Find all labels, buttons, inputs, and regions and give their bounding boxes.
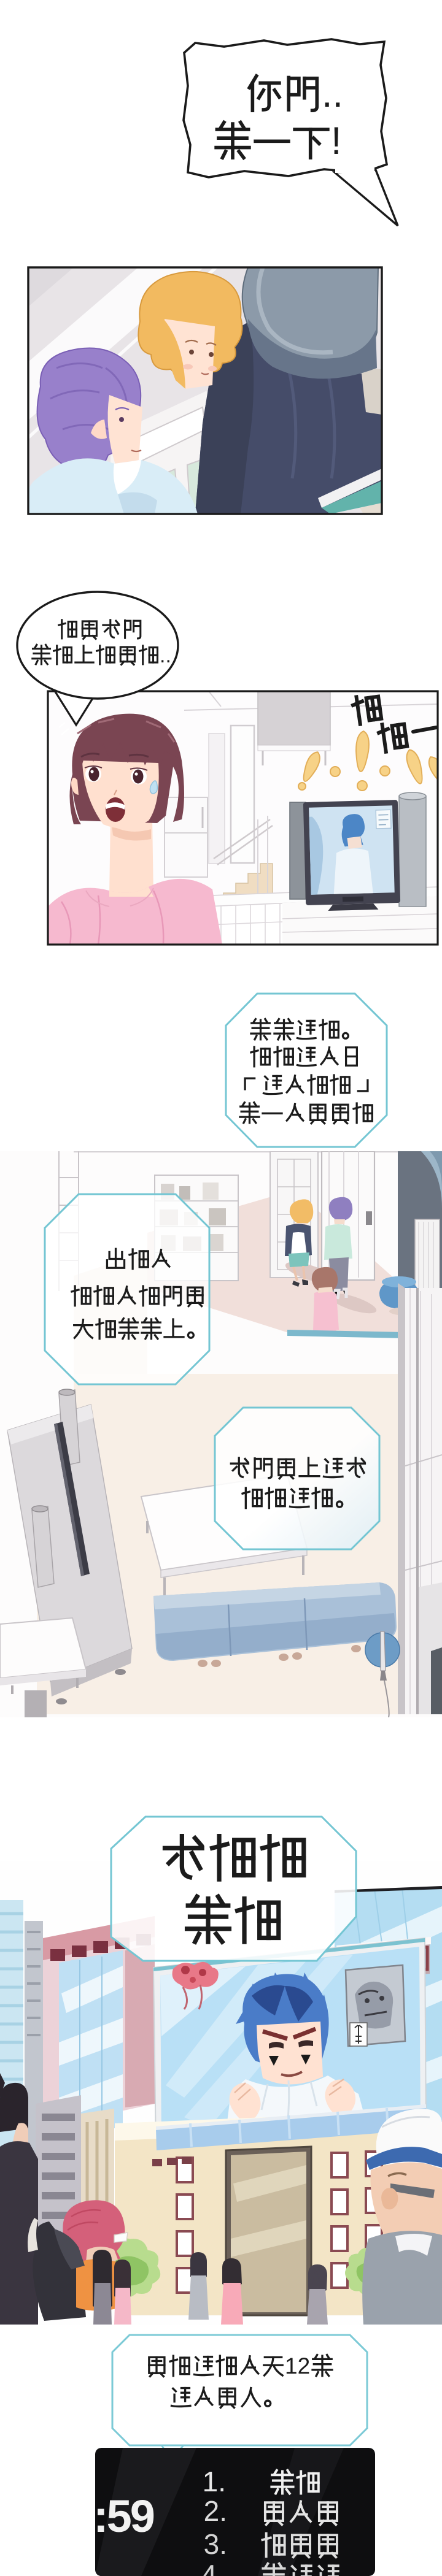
svg-text:1.: 1.: [203, 2466, 226, 2497]
svg-text:..: ..: [160, 644, 171, 667]
svg-text:4.: 4.: [201, 2559, 225, 2576]
svg-text:!: !: [331, 120, 342, 163]
svg-text::59: :59: [93, 2491, 154, 2542]
svg-text:3.: 3.: [204, 2528, 227, 2560]
svg-text:12: 12: [285, 2353, 310, 2379]
svg-text:2.: 2.: [204, 2495, 227, 2527]
svg-text:..: ..: [322, 72, 343, 115]
